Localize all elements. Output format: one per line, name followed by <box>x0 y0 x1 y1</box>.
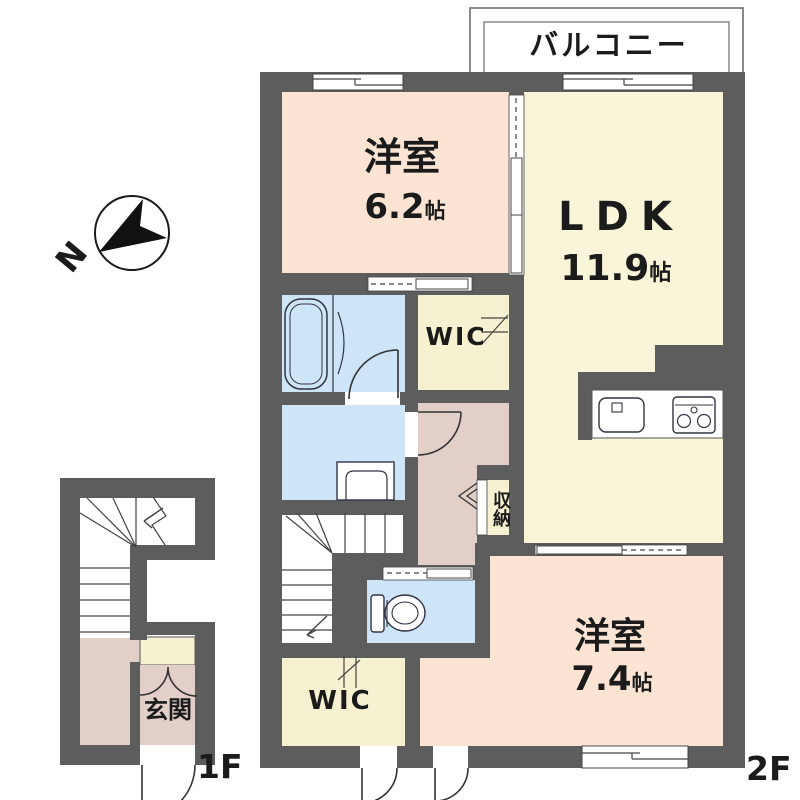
kitchen-sink <box>599 398 644 432</box>
sliding-door-ldk-bedroom <box>535 545 687 555</box>
ldk-size-unit: 帖 <box>649 260 671 286</box>
compass <box>95 196 169 270</box>
bedroom-upper-name: 洋室 <box>312 138 492 178</box>
bathroom-door-opening <box>345 392 400 405</box>
floor-marker-1f: 1F <box>197 750 257 785</box>
toilet <box>371 595 425 632</box>
floor-marker-2f: 2F <box>746 752 796 787</box>
stair-landing-floor <box>80 638 130 745</box>
wic-upper-label: WIC <box>420 324 492 350</box>
sliding-door-wic-upper <box>368 277 472 291</box>
sliding-door-toilet <box>383 567 473 580</box>
bedroom-upper-floor <box>282 92 509 273</box>
ldk-name: LDK <box>530 196 700 238</box>
bedroom-lower-size-unit: 帖 <box>632 670 653 695</box>
landing-passage <box>130 640 140 662</box>
vanity-sink <box>337 462 394 500</box>
bedroom-lower-name: 洋室 <box>520 618 700 656</box>
bedroom-upper-size-unit: 帖 <box>425 198 446 223</box>
balcony-label: バルコニー <box>489 30 729 60</box>
bedroom-lower-door-swing <box>435 768 468 800</box>
storage-door <box>477 480 487 535</box>
floor-plan-page: バルコニー 洋室 6.2帖 LDK 11.9帖 洋室 7.4帖 WIC WIC … <box>0 0 800 800</box>
storage-label: 収納 <box>487 483 509 535</box>
ldk-floor <box>524 92 723 543</box>
shoe-cabinet <box>140 637 195 665</box>
wic-lower-label: WIC <box>284 688 396 715</box>
window-bedroom-upper <box>313 74 403 90</box>
door-opening-bedroom-lower <box>433 746 468 768</box>
entrance-door-swing <box>142 765 195 800</box>
bedroom-upper-size: 6.2帖 <box>312 190 498 226</box>
ldk-size-value: 11.9 <box>560 248 649 289</box>
bedroom-upper-size-value: 6.2 <box>364 187 424 227</box>
washroom-door-opening <box>405 412 418 457</box>
bedroom-lower-size-value: 7.4 <box>571 659 631 699</box>
kitchen-stove <box>673 397 715 433</box>
sliding-partition-bedroom-ldk <box>509 95 524 275</box>
door-opening-wic-lower <box>360 746 397 768</box>
window-bedroom-lower <box>582 746 688 768</box>
kitchen-counter <box>592 390 723 438</box>
entrance-label: 玄関 <box>138 698 198 723</box>
window-ldk-balcony <box>563 74 693 90</box>
bedroom-lower-size: 7.4帖 <box>522 662 702 698</box>
wic-lower-door-swing <box>362 768 397 800</box>
ldk-size: 11.9帖 <box>528 250 704 288</box>
entrance-door-opening <box>140 745 195 765</box>
